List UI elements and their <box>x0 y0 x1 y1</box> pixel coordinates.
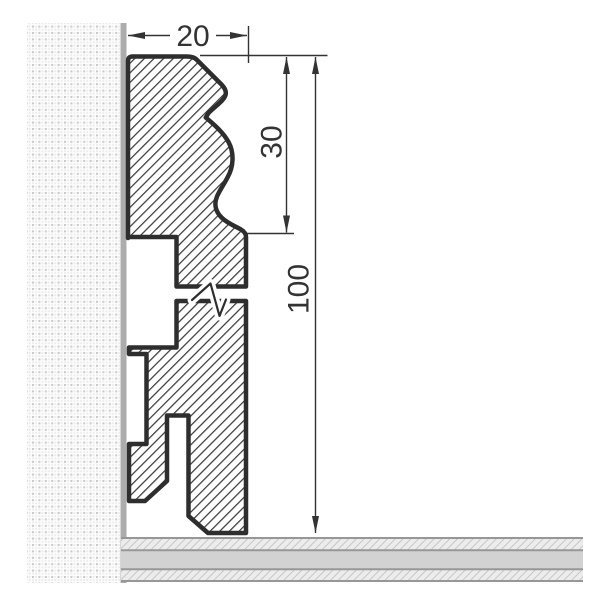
wall-dotted-surface <box>27 23 120 583</box>
floor-section <box>121 537 583 582</box>
wall-edge-line <box>121 23 127 583</box>
skirting-lower-profile <box>129 301 246 533</box>
skirting-upper-profile <box>128 57 246 287</box>
dim-total-height-arrow-top <box>312 57 319 74</box>
dim-upper-height-arrow-bottom <box>283 216 290 233</box>
dim-width-arrow-right <box>230 32 247 39</box>
dim-total-height-label: 100 <box>283 264 316 314</box>
dim-upper-height-arrow-top <box>283 57 290 74</box>
dim-width-label: 20 <box>176 20 209 53</box>
floor-top-hatch-layer <box>121 539 583 550</box>
floor-bottom-hatch-layer <box>121 570 583 581</box>
technical-drawing-canvas: 20 30 100 <box>0 0 604 604</box>
dim-upper-height-label: 30 <box>256 125 289 158</box>
dim-width-arrow-left <box>128 32 145 39</box>
dim-total-height-arrow-bottom <box>312 516 319 533</box>
wall-section <box>27 23 127 583</box>
